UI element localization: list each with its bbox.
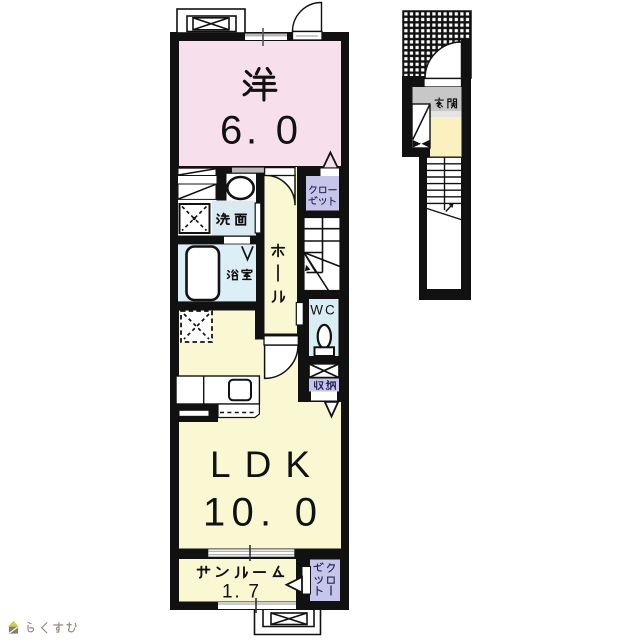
svg-text:WC: WC <box>310 303 337 318</box>
svg-text:10. 0: 10. 0 <box>203 491 317 535</box>
svg-text:LDK: LDK <box>210 444 310 485</box>
svg-text:1. 7: 1. 7 <box>222 582 259 603</box>
